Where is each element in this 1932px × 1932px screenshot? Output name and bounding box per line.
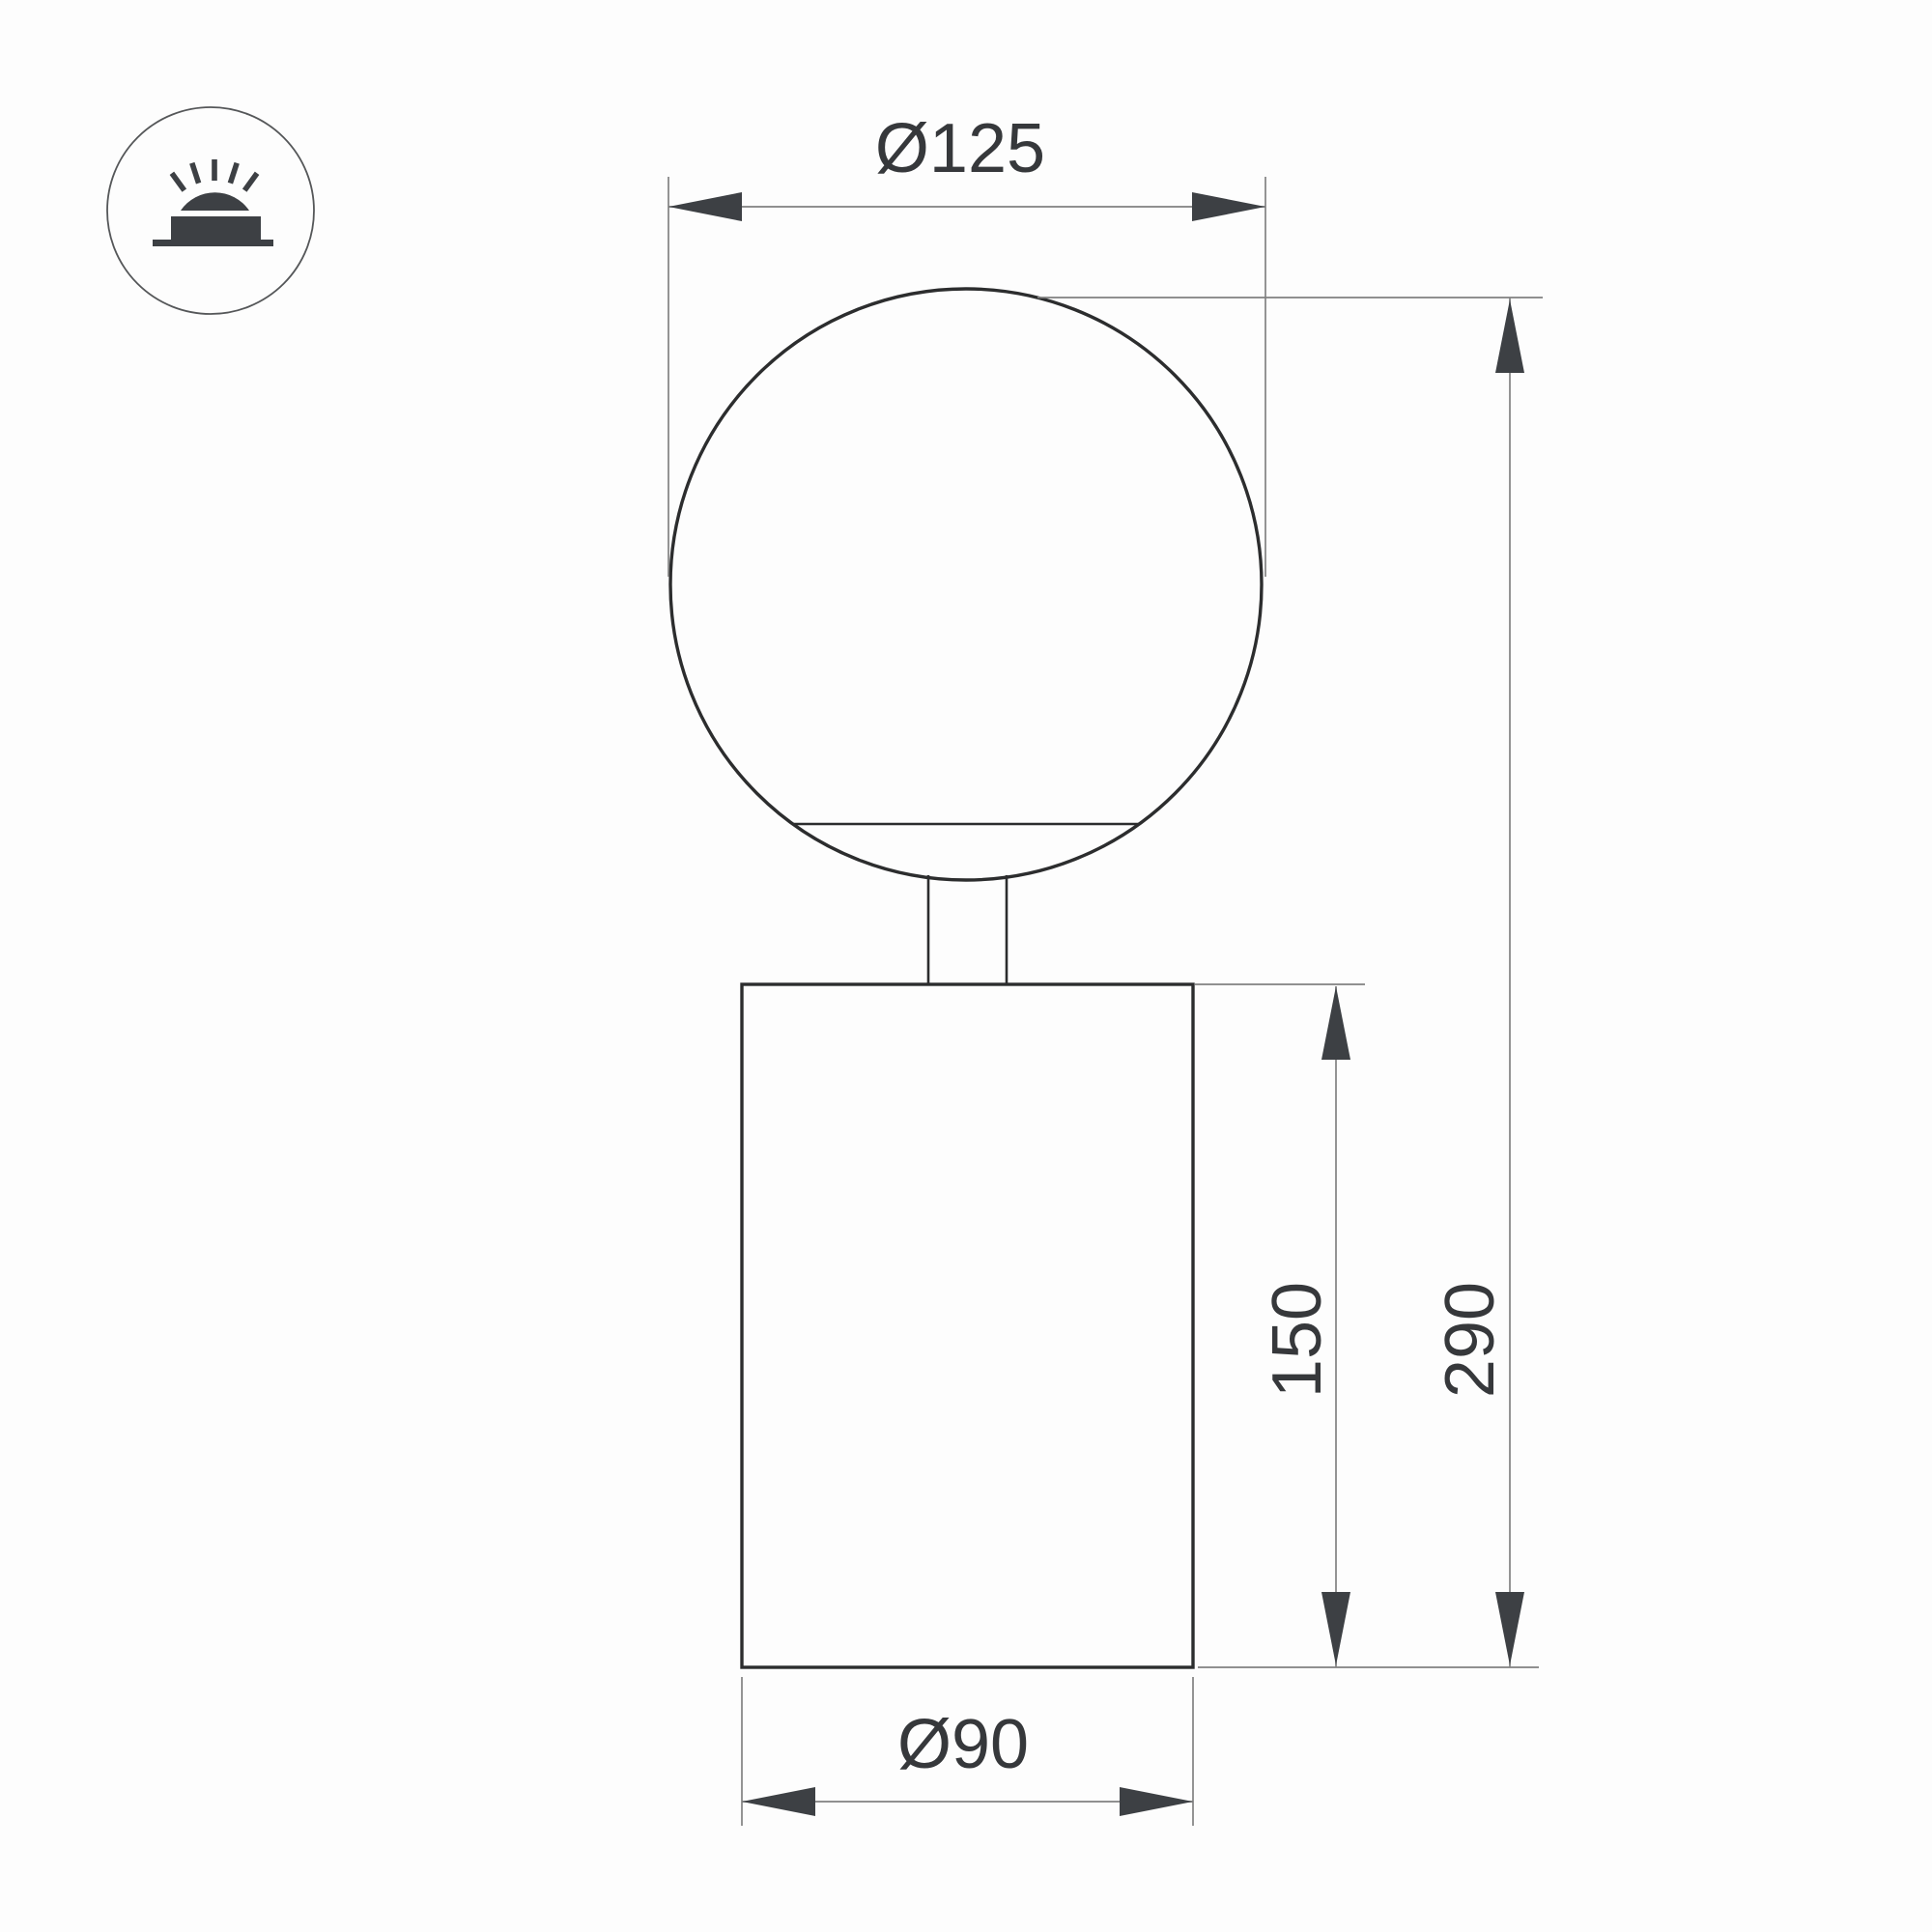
sphere-outline (670, 289, 1262, 880)
arrow-up-icon (1321, 986, 1350, 1060)
dimension-body-diameter: Ø90 (742, 1677, 1193, 1826)
dimension-label-body-height: 150 (1259, 1282, 1336, 1398)
arrow-left-icon (668, 192, 742, 221)
drawing-canvas: Ø125 290 150 Ø90 (0, 0, 1932, 1932)
dimension-label-total-height: 290 (1432, 1282, 1509, 1398)
dimension-label-sphere-diameter: Ø125 (875, 110, 1045, 187)
dimension-label-body-diameter: Ø90 (897, 1706, 1029, 1783)
dimension-body-height: 150 (1195, 984, 1365, 1667)
lamp-body-shape (171, 216, 261, 240)
arrow-down-icon (1495, 1592, 1524, 1665)
arrow-up-icon (1495, 299, 1524, 373)
technical-drawing: Ø125 290 150 Ø90 (0, 0, 1932, 1932)
arrow-down-icon (1321, 1592, 1350, 1665)
arrow-right-icon (1120, 1787, 1193, 1816)
dimension-sphere-diameter: Ø125 (668, 110, 1265, 577)
lamp-base-shape (153, 240, 273, 246)
arrow-right-icon (1192, 192, 1265, 221)
arrow-left-icon (742, 1787, 815, 1816)
body-outline (742, 984, 1193, 1667)
luminaire-outline (670, 289, 1262, 1667)
dimension-total-height: 290 (1037, 298, 1543, 1667)
mount-type-badge (107, 107, 314, 314)
